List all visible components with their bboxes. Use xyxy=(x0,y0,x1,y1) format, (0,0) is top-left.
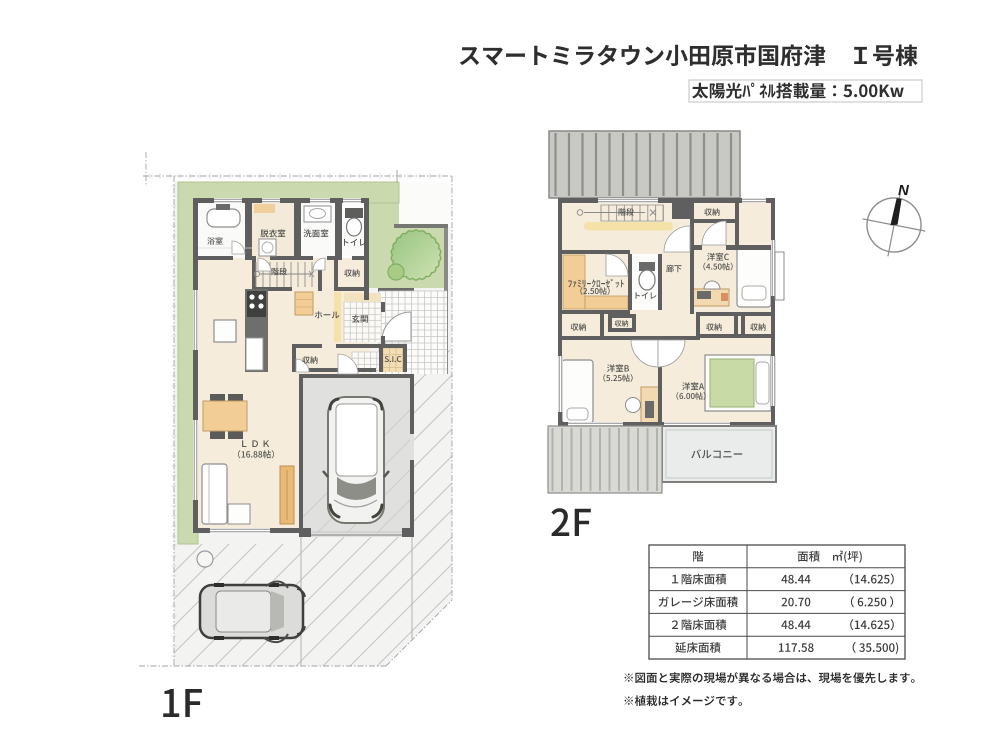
svg-text:N: N xyxy=(898,182,910,199)
